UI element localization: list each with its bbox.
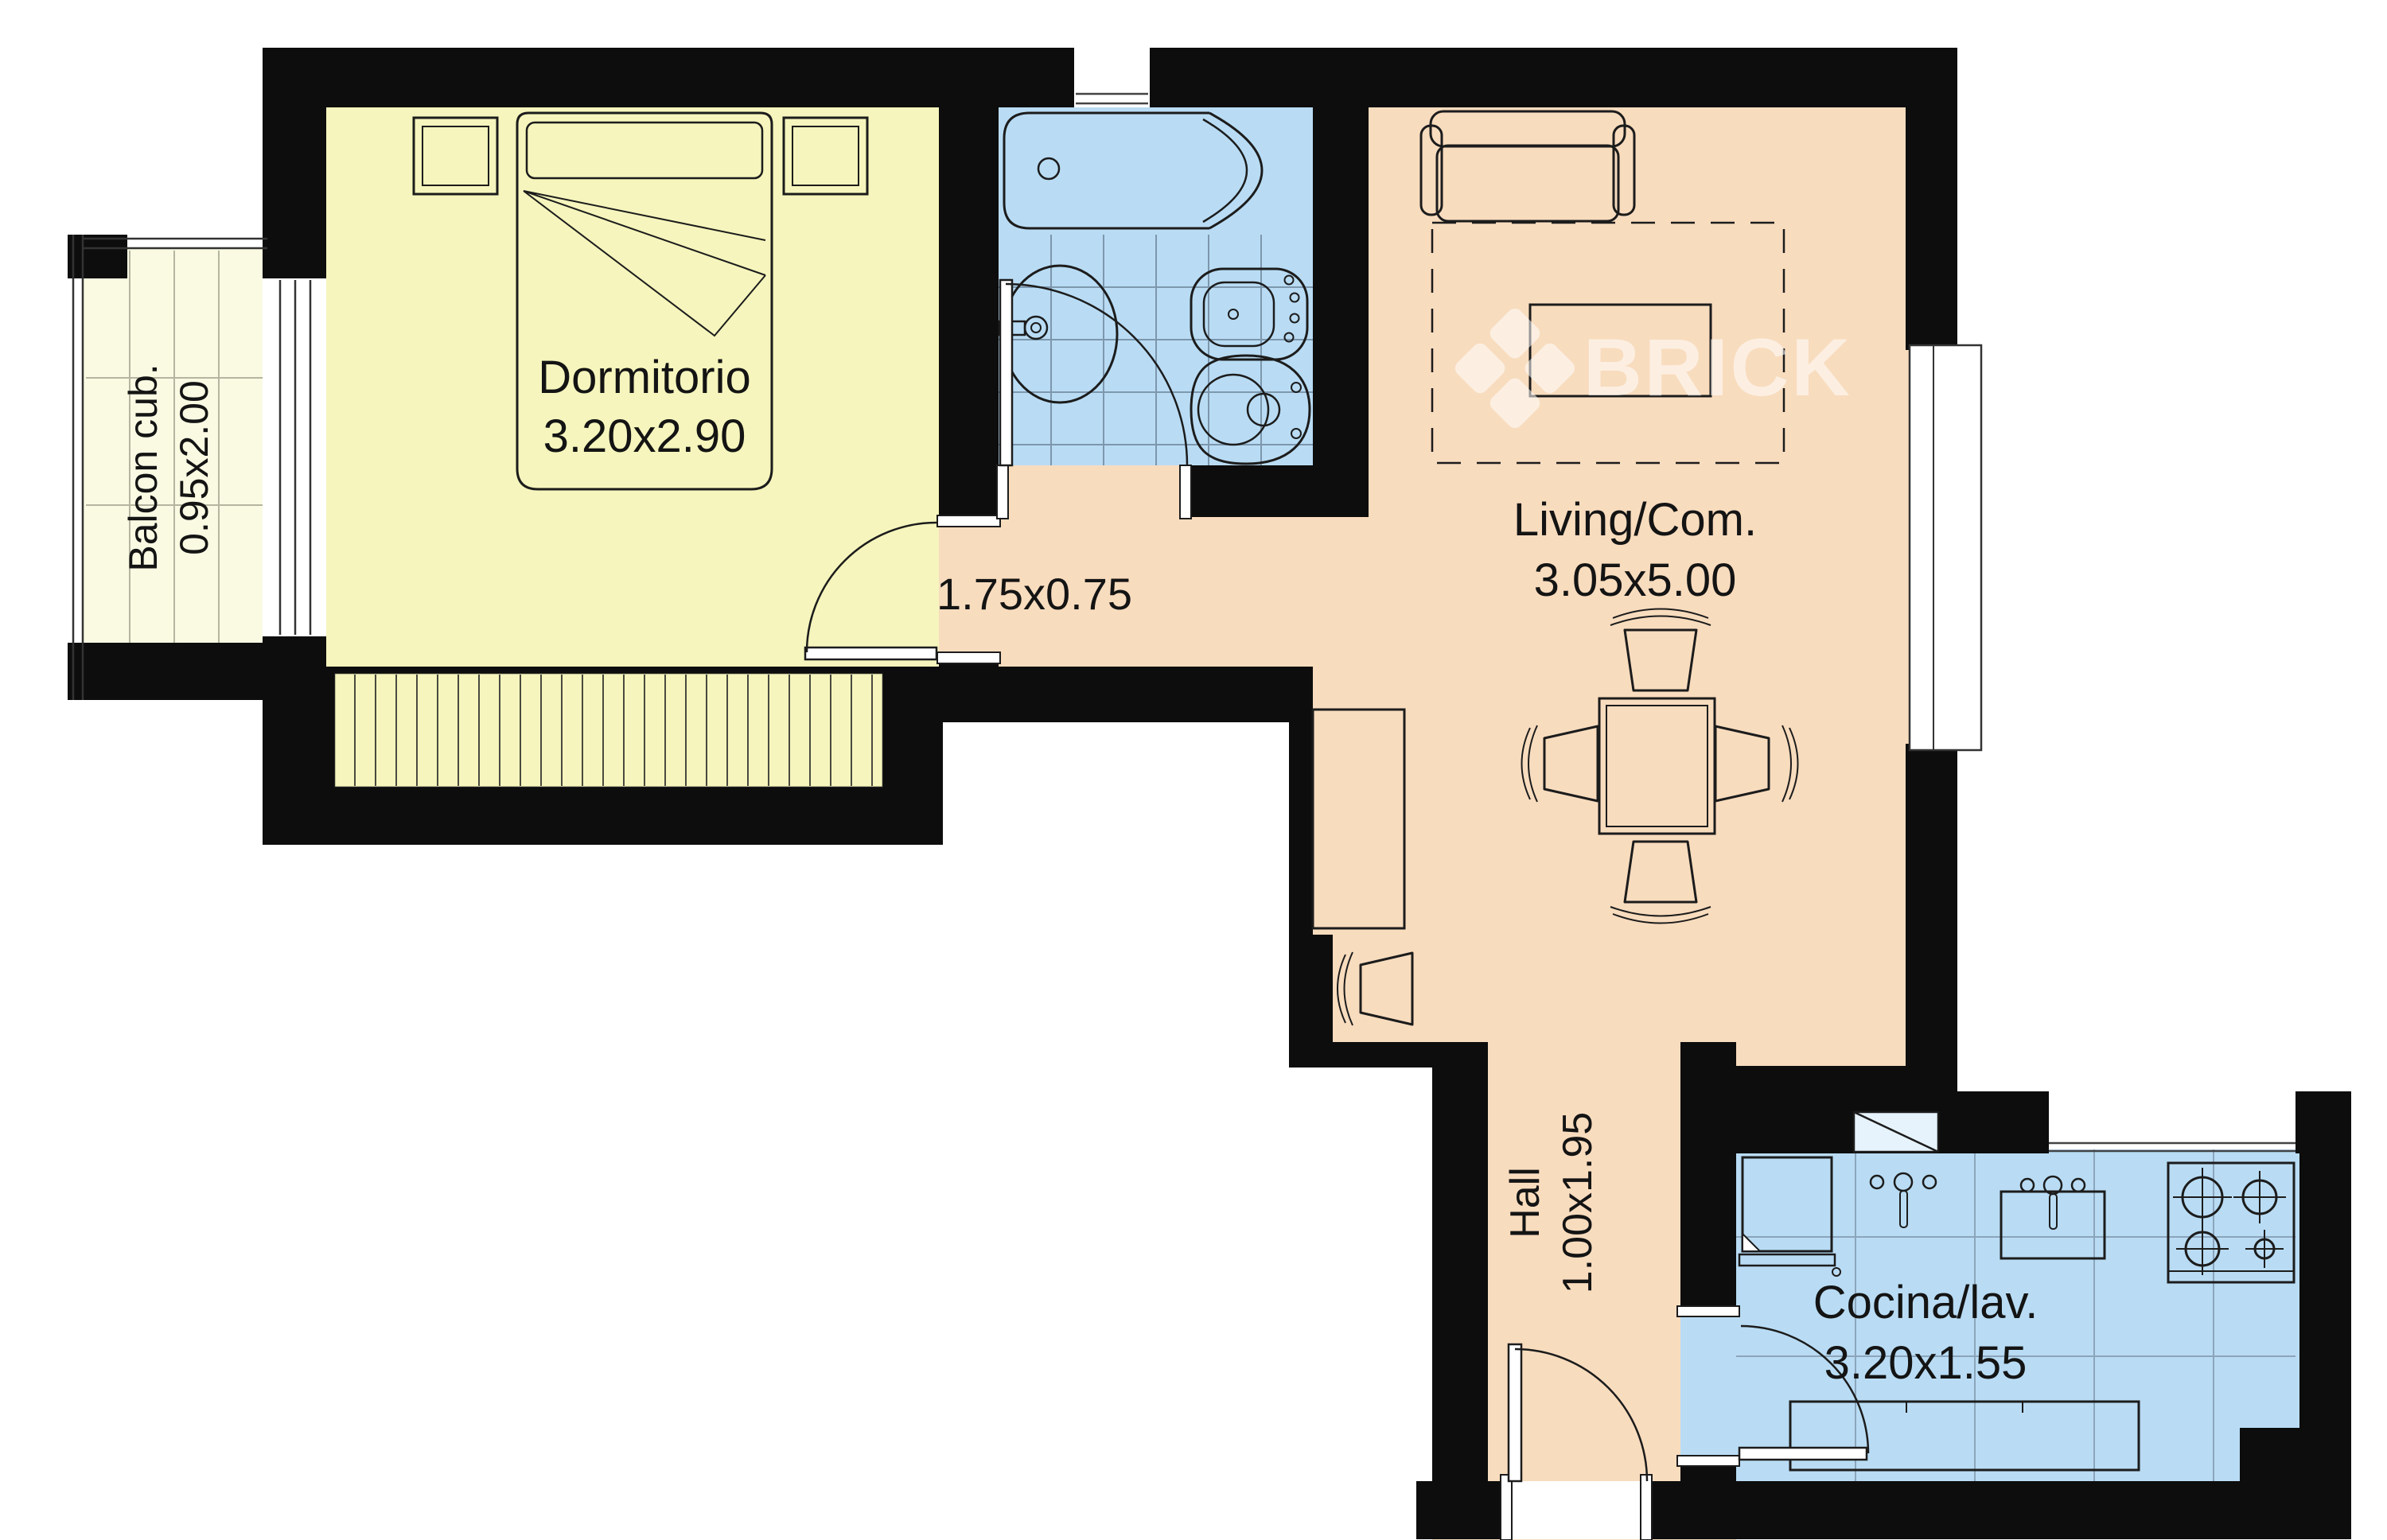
entry-door-gap xyxy=(1509,1481,1641,1539)
hall-name: Hall xyxy=(1499,1112,1552,1293)
room-label-balcon: Balcon cub. 0.95x2.00 xyxy=(118,364,220,571)
wall-bedroom-bath-divider xyxy=(939,107,999,517)
bathroom-door-leaf xyxy=(1000,280,1012,465)
wall-bath-living-divider xyxy=(1313,107,1369,517)
wall-living-west-b xyxy=(1289,935,1333,1044)
entry-door-leaf xyxy=(1509,1344,1521,1481)
cocina-name: Cocina/lav. xyxy=(1813,1273,2038,1333)
bedroom-door-jamb-top xyxy=(937,515,1000,527)
passage-dims: 1.75x0.75 xyxy=(936,570,1132,618)
wall-living-east-upper xyxy=(1906,107,1957,350)
balcon-name: Balcon cub. xyxy=(118,364,169,571)
brick-logo-icon xyxy=(1452,305,1578,430)
bathroom-door-jamb-left xyxy=(997,465,1008,519)
kitchen-door-leaf xyxy=(1739,1448,1867,1460)
balcon-dims: 0.95x2.00 xyxy=(169,364,220,571)
brick-watermark-text: BRICK xyxy=(1583,321,1852,414)
living-dims: 3.05x5.00 xyxy=(1513,550,1757,611)
kitchen-door-jamb-top xyxy=(1677,1306,1739,1316)
kitchen-window xyxy=(2049,1091,2295,1149)
kitchen-door-jamb-bottom xyxy=(1677,1456,1739,1466)
dormitorio-dims: 3.20x2.90 xyxy=(538,407,751,466)
wall-hall-south-left xyxy=(1416,1481,1509,1539)
living-name: Living/Com. xyxy=(1513,490,1757,550)
wall-kitchen-east xyxy=(2299,1091,2351,1486)
wall-bedroom-west-upper xyxy=(263,107,326,278)
cocina-dims: 3.20x1.55 xyxy=(1813,1333,2038,1394)
bath-door-threshold xyxy=(999,465,1190,517)
bathroom-door-jamb-right xyxy=(1180,465,1191,519)
living-window xyxy=(1910,345,1981,750)
room-label-dormitorio: Dormitorio 3.20x2.90 xyxy=(538,348,751,466)
bathroom-window xyxy=(1074,48,1150,107)
dormitorio-name: Dormitorio xyxy=(538,348,751,407)
wall-living-west-c xyxy=(1289,1042,1432,1067)
kitchen-door-gap xyxy=(1680,1312,1736,1457)
wall-closet-bottom xyxy=(263,787,943,845)
brick-logo-facet xyxy=(1521,340,1578,396)
bedroom-floor-edge xyxy=(326,667,939,673)
brick-watermark: BRICK xyxy=(1470,321,1852,414)
wall-living-east-lower xyxy=(1906,744,1957,1066)
wall-kitchen-corner-step xyxy=(2240,1428,2351,1487)
room-label-cocina: Cocina/lav. 3.20x1.55 xyxy=(1813,1273,2038,1394)
wall-living-west-a xyxy=(1289,667,1313,937)
balcony-slider xyxy=(267,278,326,636)
bedroom-door-leaf xyxy=(805,647,936,659)
entry-door-jamb-left xyxy=(1501,1475,1512,1540)
wall-balcony-corner-top xyxy=(68,235,127,278)
hall-dims: 1.00x1.95 xyxy=(1552,1112,1604,1293)
wall-kitchen-south xyxy=(1707,1481,2351,1539)
room-label-living: Living/Com. 3.05x5.00 xyxy=(1513,490,1757,611)
wall-hall-west xyxy=(1432,1042,1488,1486)
room-label-hall: Hall 1.00x1.95 xyxy=(1499,1112,1604,1293)
floor-plan: BRICK Dormitorio 3.20x2.90 Balcon cub. 0… xyxy=(0,0,2387,1540)
bedroom-door-jamb-bottom xyxy=(937,652,1000,663)
wall-passage-bottom xyxy=(883,667,1313,722)
passage-dims-label: 1.75x0.75 xyxy=(936,570,1132,618)
entry-door-jamb-right xyxy=(1641,1475,1652,1540)
wall-hall-south-right xyxy=(1641,1481,1736,1539)
